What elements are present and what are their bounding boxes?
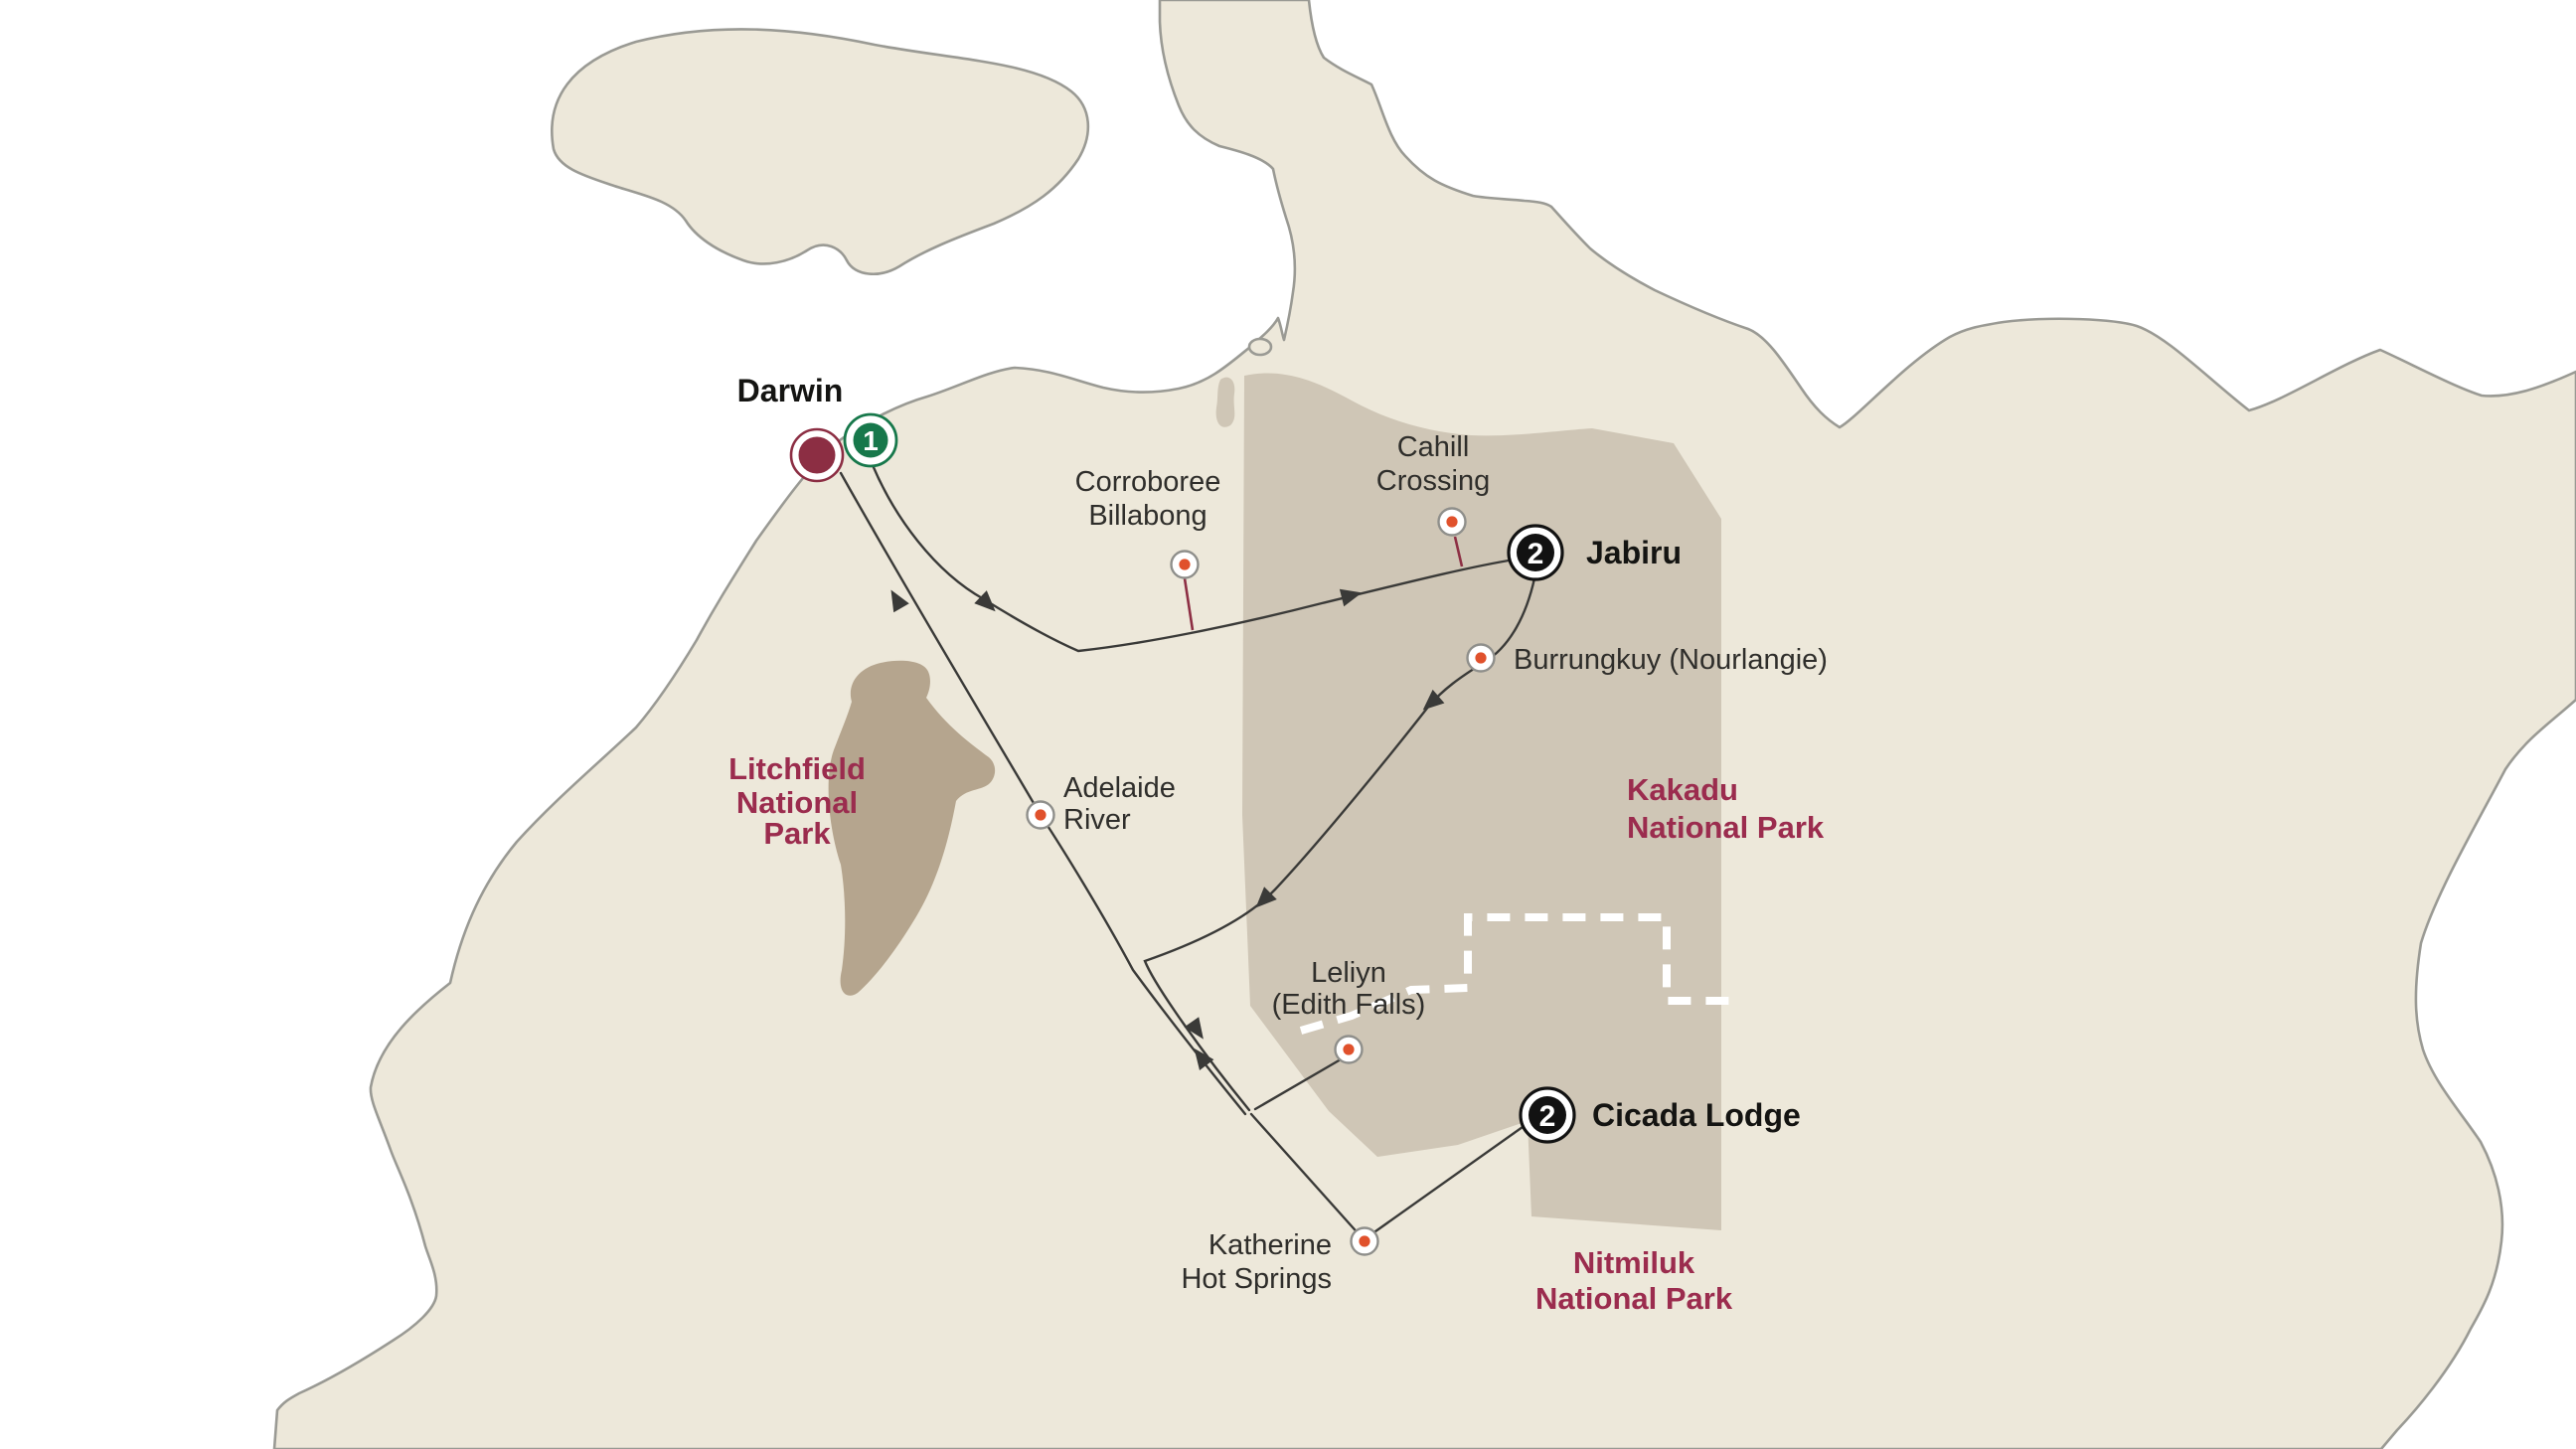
svg-text:Park: Park	[763, 816, 831, 851]
darwin-label: Darwin	[737, 373, 844, 408]
cicada-lodge-nights-badge: 2	[1521, 1088, 1574, 1142]
jabiru-nights-badge: 2	[1509, 526, 1562, 579]
jabiru-nights-count: 2	[1528, 538, 1544, 570]
tour-itinerary-map: 1 2 2 Darwin Jabiru Cicada Lodge Corrobo…	[0, 0, 2576, 1449]
svg-text:Kakadu: Kakadu	[1627, 772, 1738, 807]
cahill-crossing-marker-icon	[1439, 509, 1466, 536]
darwin-nights-count: 1	[863, 425, 879, 456]
map-canvas: 1 2 2 Darwin Jabiru Cicada Lodge Corrobo…	[0, 0, 2576, 1449]
park-outlier-patch	[1216, 378, 1235, 427]
svg-text:Litchfield: Litchfield	[728, 751, 866, 786]
svg-text:(Edith Falls): (Edith Falls)	[1272, 989, 1426, 1021]
jabiru-label: Jabiru	[1586, 535, 1682, 570]
darwin-city-marker-icon	[791, 429, 843, 481]
cicada-nights-count: 2	[1539, 1100, 1556, 1133]
burrungkuy-marker-icon	[1468, 645, 1495, 672]
svg-text:Adelaide: Adelaide	[1063, 772, 1176, 804]
svg-text:Crossing: Crossing	[1376, 465, 1490, 497]
svg-text:Katherine: Katherine	[1208, 1229, 1332, 1261]
svg-text:National Park: National Park	[1627, 810, 1825, 845]
darwin-nights-badge: 1	[845, 414, 896, 466]
leliyn-marker-icon	[1336, 1037, 1363, 1063]
svg-text:River: River	[1063, 804, 1131, 836]
cicada-lodge-label: Cicada Lodge	[1592, 1097, 1801, 1133]
svg-text:Cahill: Cahill	[1397, 431, 1470, 463]
svg-text:National: National	[736, 785, 858, 820]
adelaide-river-marker-icon	[1028, 802, 1054, 829]
katherine-hot-springs-marker-icon	[1352, 1228, 1378, 1255]
svg-text:Corroboree: Corroboree	[1075, 466, 1221, 498]
tiwi-island-shape	[552, 29, 1088, 273]
small-islet-shape	[1249, 339, 1271, 355]
svg-text:Billabong: Billabong	[1088, 500, 1207, 532]
svg-text:Leliyn: Leliyn	[1311, 957, 1386, 989]
svg-text:National Park: National Park	[1535, 1281, 1733, 1316]
corroboree-billabong-marker-icon	[1172, 552, 1199, 578]
svg-text:Hot Springs: Hot Springs	[1181, 1263, 1332, 1295]
svg-text:Nitmiluk: Nitmiluk	[1573, 1245, 1695, 1280]
burrungkuy-label: Burrungkuy (Nourlangie)	[1514, 644, 1828, 676]
